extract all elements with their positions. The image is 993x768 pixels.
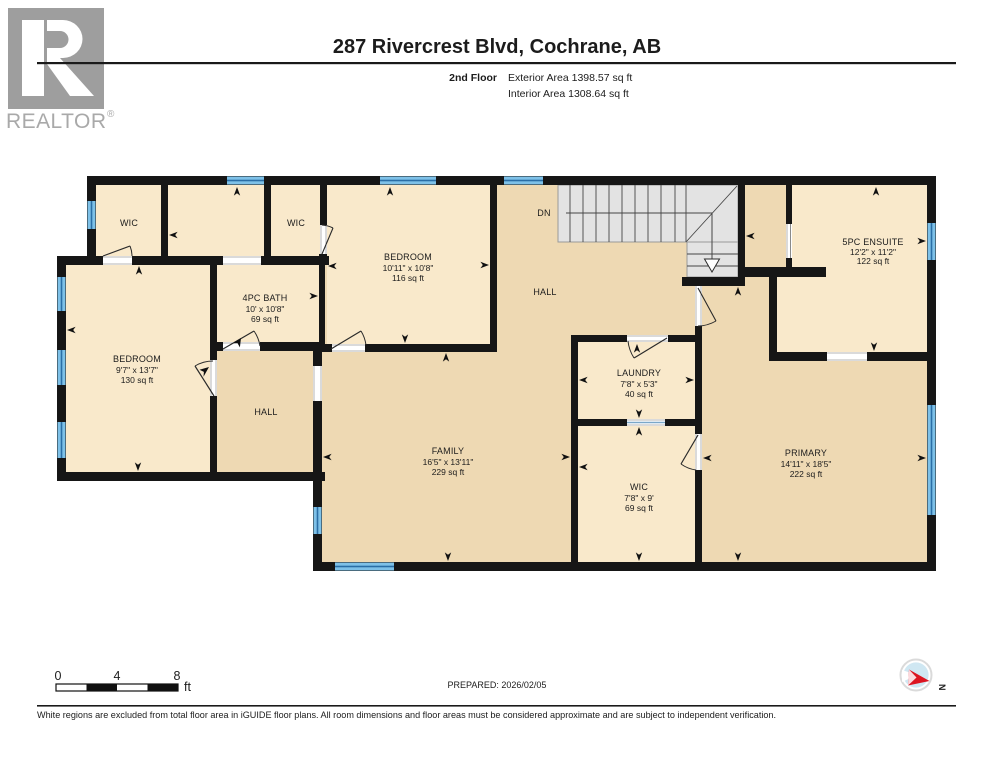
svg-text:7'8" x 5'3": 7'8" x 5'3" <box>620 379 657 389</box>
svg-text:10' x 10'8": 10' x 10'8" <box>246 304 285 314</box>
svg-text:14'11" x 18'5": 14'11" x 18'5" <box>781 459 832 469</box>
svg-text:222 sq ft: 222 sq ft <box>790 469 823 479</box>
svg-text:HALL: HALL <box>533 287 556 297</box>
svg-text:229 sq ft: 229 sq ft <box>432 467 465 477</box>
svg-text:LAUNDRY: LAUNDRY <box>617 368 661 378</box>
svg-text:N: N <box>937 684 947 691</box>
svg-text:122 sq ft: 122 sq ft <box>857 256 890 266</box>
svg-text:BEDROOM: BEDROOM <box>113 354 161 364</box>
svg-text:ft: ft <box>184 680 191 694</box>
svg-text:0: 0 <box>55 669 62 683</box>
svg-text:FAMILY: FAMILY <box>432 446 465 456</box>
svg-text:130 sq ft: 130 sq ft <box>121 375 154 385</box>
svg-text:5PC ENSUITE: 5PC ENSUITE <box>842 237 903 247</box>
svg-text:4PC BATH: 4PC BATH <box>243 293 288 303</box>
svg-text:Interior Area 1308.64 sq ft: Interior Area 1308.64 sq ft <box>508 88 629 100</box>
svg-text:DN: DN <box>537 208 550 218</box>
svg-text:REALTOR: REALTOR <box>6 110 106 133</box>
svg-text:BEDROOM: BEDROOM <box>384 252 432 262</box>
svg-text:9'7" x 13'7": 9'7" x 13'7" <box>116 365 158 375</box>
svg-text:WIC: WIC <box>120 218 138 228</box>
svg-text:116 sq ft: 116 sq ft <box>392 273 425 283</box>
svg-text:287 Rivercrest Blvd, Cochrane,: 287 Rivercrest Blvd, Cochrane, AB <box>333 36 661 58</box>
svg-text:8: 8 <box>174 669 181 683</box>
svg-text:PREPARED: 2026/02/05: PREPARED: 2026/02/05 <box>448 680 547 690</box>
svg-text:WIC: WIC <box>287 218 305 228</box>
svg-text:2nd Floor: 2nd Floor <box>449 72 497 84</box>
svg-text:16'5" x 13'11": 16'5" x 13'11" <box>423 457 474 467</box>
svg-text:PRIMARY: PRIMARY <box>785 448 827 458</box>
svg-text:4: 4 <box>114 669 121 683</box>
svg-text:7'8" x 9': 7'8" x 9' <box>624 493 654 503</box>
svg-text:HALL: HALL <box>254 407 277 417</box>
svg-text:69 sq ft: 69 sq ft <box>625 503 654 513</box>
svg-text:®: ® <box>107 109 115 120</box>
svg-text:10'11" x 10'8": 10'11" x 10'8" <box>383 263 434 273</box>
svg-text:Exterior Area 1398.57 sq ft: Exterior Area 1398.57 sq ft <box>508 72 632 84</box>
svg-text:69 sq ft: 69 sq ft <box>251 314 280 324</box>
svg-text:40 sq ft: 40 sq ft <box>625 389 654 399</box>
svg-text:White regions are excluded fro: White regions are excluded from total fl… <box>37 710 776 720</box>
svg-text:WIC: WIC <box>630 482 648 492</box>
